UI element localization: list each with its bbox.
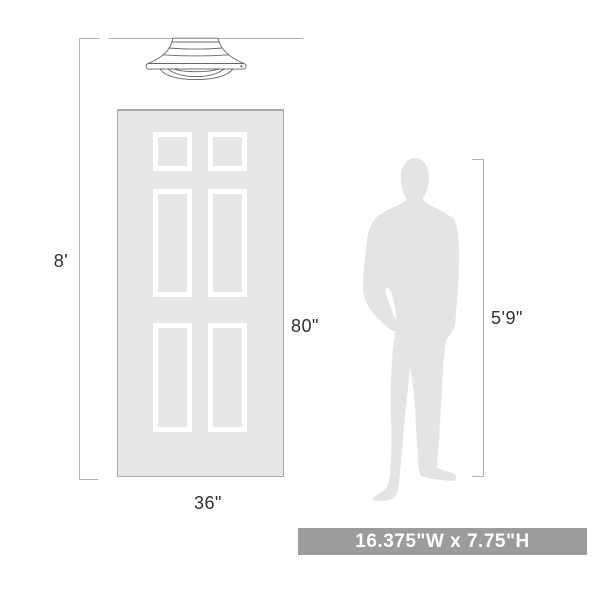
person-height-dim-tick-bottom: [472, 476, 484, 477]
fixture-rim: [146, 64, 246, 70]
person-height-dim-tick-top: [472, 159, 484, 160]
person-height-dim-line: [483, 159, 484, 477]
person-silhouette-icon: [358, 156, 468, 502]
product-size-text: 16.375"W x 7.75"H: [355, 531, 529, 553]
door-icon: [117, 109, 284, 477]
door-panel: [153, 323, 192, 432]
fixture-shade: [148, 42, 244, 64]
door-width-label: 36": [183, 494, 233, 512]
ceiling-height-dim-line: [79, 39, 80, 480]
door-panel: [208, 323, 247, 432]
door-height-label: 80": [291, 317, 319, 335]
door-panel: [208, 189, 247, 297]
door-panel: [153, 132, 192, 171]
door-panel: [153, 189, 192, 297]
ceiling-height-dim-tick-top: [79, 38, 100, 39]
ceiling-height-label: 8': [48, 252, 74, 270]
person-body: [363, 158, 459, 501]
ceiling-light-icon: [136, 36, 256, 82]
product-size-badge: 16.375"W x 7.75"H: [298, 528, 587, 555]
fixture-finial: [240, 65, 242, 67]
door-panel: [208, 132, 247, 171]
ceiling-height-dim-tick-bottom: [79, 479, 98, 480]
person-height-label: 5'9": [491, 309, 523, 327]
dimensions-diagram: 8' 80" 36" 5'9" 16.375"W x 7.75"H: [0, 0, 600, 600]
fixture-canopy: [172, 38, 219, 42]
